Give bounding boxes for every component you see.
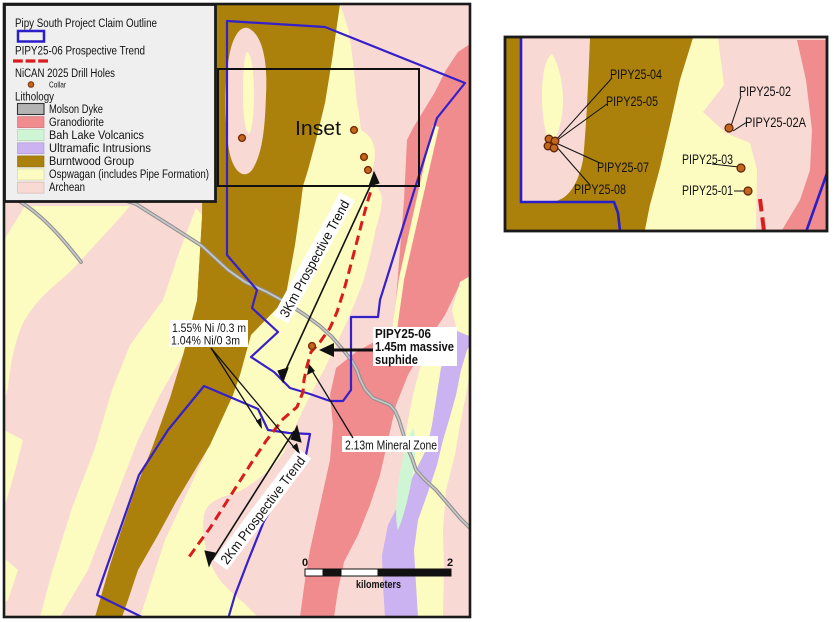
svg-text:PIPY25-05: PIPY25-05 [606, 94, 658, 109]
svg-text:PIPY25-01: PIPY25-01 [682, 183, 733, 198]
svg-text:Granodiorite: Granodiorite [49, 115, 104, 129]
svg-text:PIPY25-04: PIPY25-04 [610, 67, 662, 82]
svg-text:Bah Lake Volcanics: Bah Lake Volcanics [49, 128, 144, 142]
svg-text:PIPY25-02A: PIPY25-02A [745, 115, 806, 130]
svg-text:Archean: Archean [49, 180, 85, 194]
svg-text:PIPY25-06 Prospective Trend: PIPY25-06 Prospective Trend [15, 44, 145, 58]
svg-text:Burntwood Group: Burntwood Group [49, 154, 134, 168]
svg-text:NiCAN 2025 Drill Holes: NiCAN 2025 Drill Holes [15, 66, 115, 80]
svg-text:PIPY25-08: PIPY25-08 [574, 182, 626, 197]
svg-text:Pipy South Project Claim Outli: Pipy South Project Claim Outline [15, 16, 157, 30]
svg-text:2: 2 [447, 557, 453, 569]
svg-text:suphide: suphide [375, 352, 418, 367]
svg-text:PIPY25-07: PIPY25-07 [597, 160, 649, 175]
svg-text:1.04% Ni/0 3m: 1.04% Ni/0 3m [171, 334, 240, 348]
svg-text:0: 0 [302, 557, 308, 569]
svg-text:Molson Dyke: Molson Dyke [49, 102, 103, 116]
svg-text:Inset: Inset [295, 118, 341, 140]
svg-text:PIPY25-03: PIPY25-03 [682, 152, 733, 167]
svg-text:Ultramafic Intrusions: Ultramafic Intrusions [49, 141, 151, 155]
svg-text:Ospwagan (includes Pipe Format: Ospwagan (includes Pipe Formation) [49, 167, 209, 181]
svg-text:PIPY25-02: PIPY25-02 [739, 84, 791, 99]
svg-text:Collar: Collar [49, 80, 66, 90]
svg-text:2.13m Mineral Zone: 2.13m Mineral Zone [345, 438, 437, 453]
svg-text:kilometers: kilometers [356, 579, 401, 591]
